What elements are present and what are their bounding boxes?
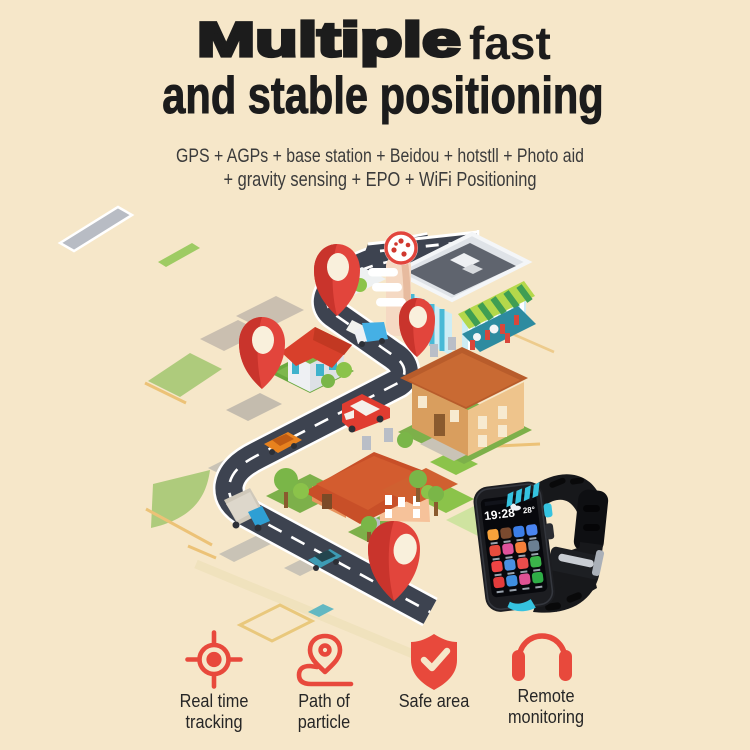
svg-text:28°: 28° xyxy=(522,505,535,515)
